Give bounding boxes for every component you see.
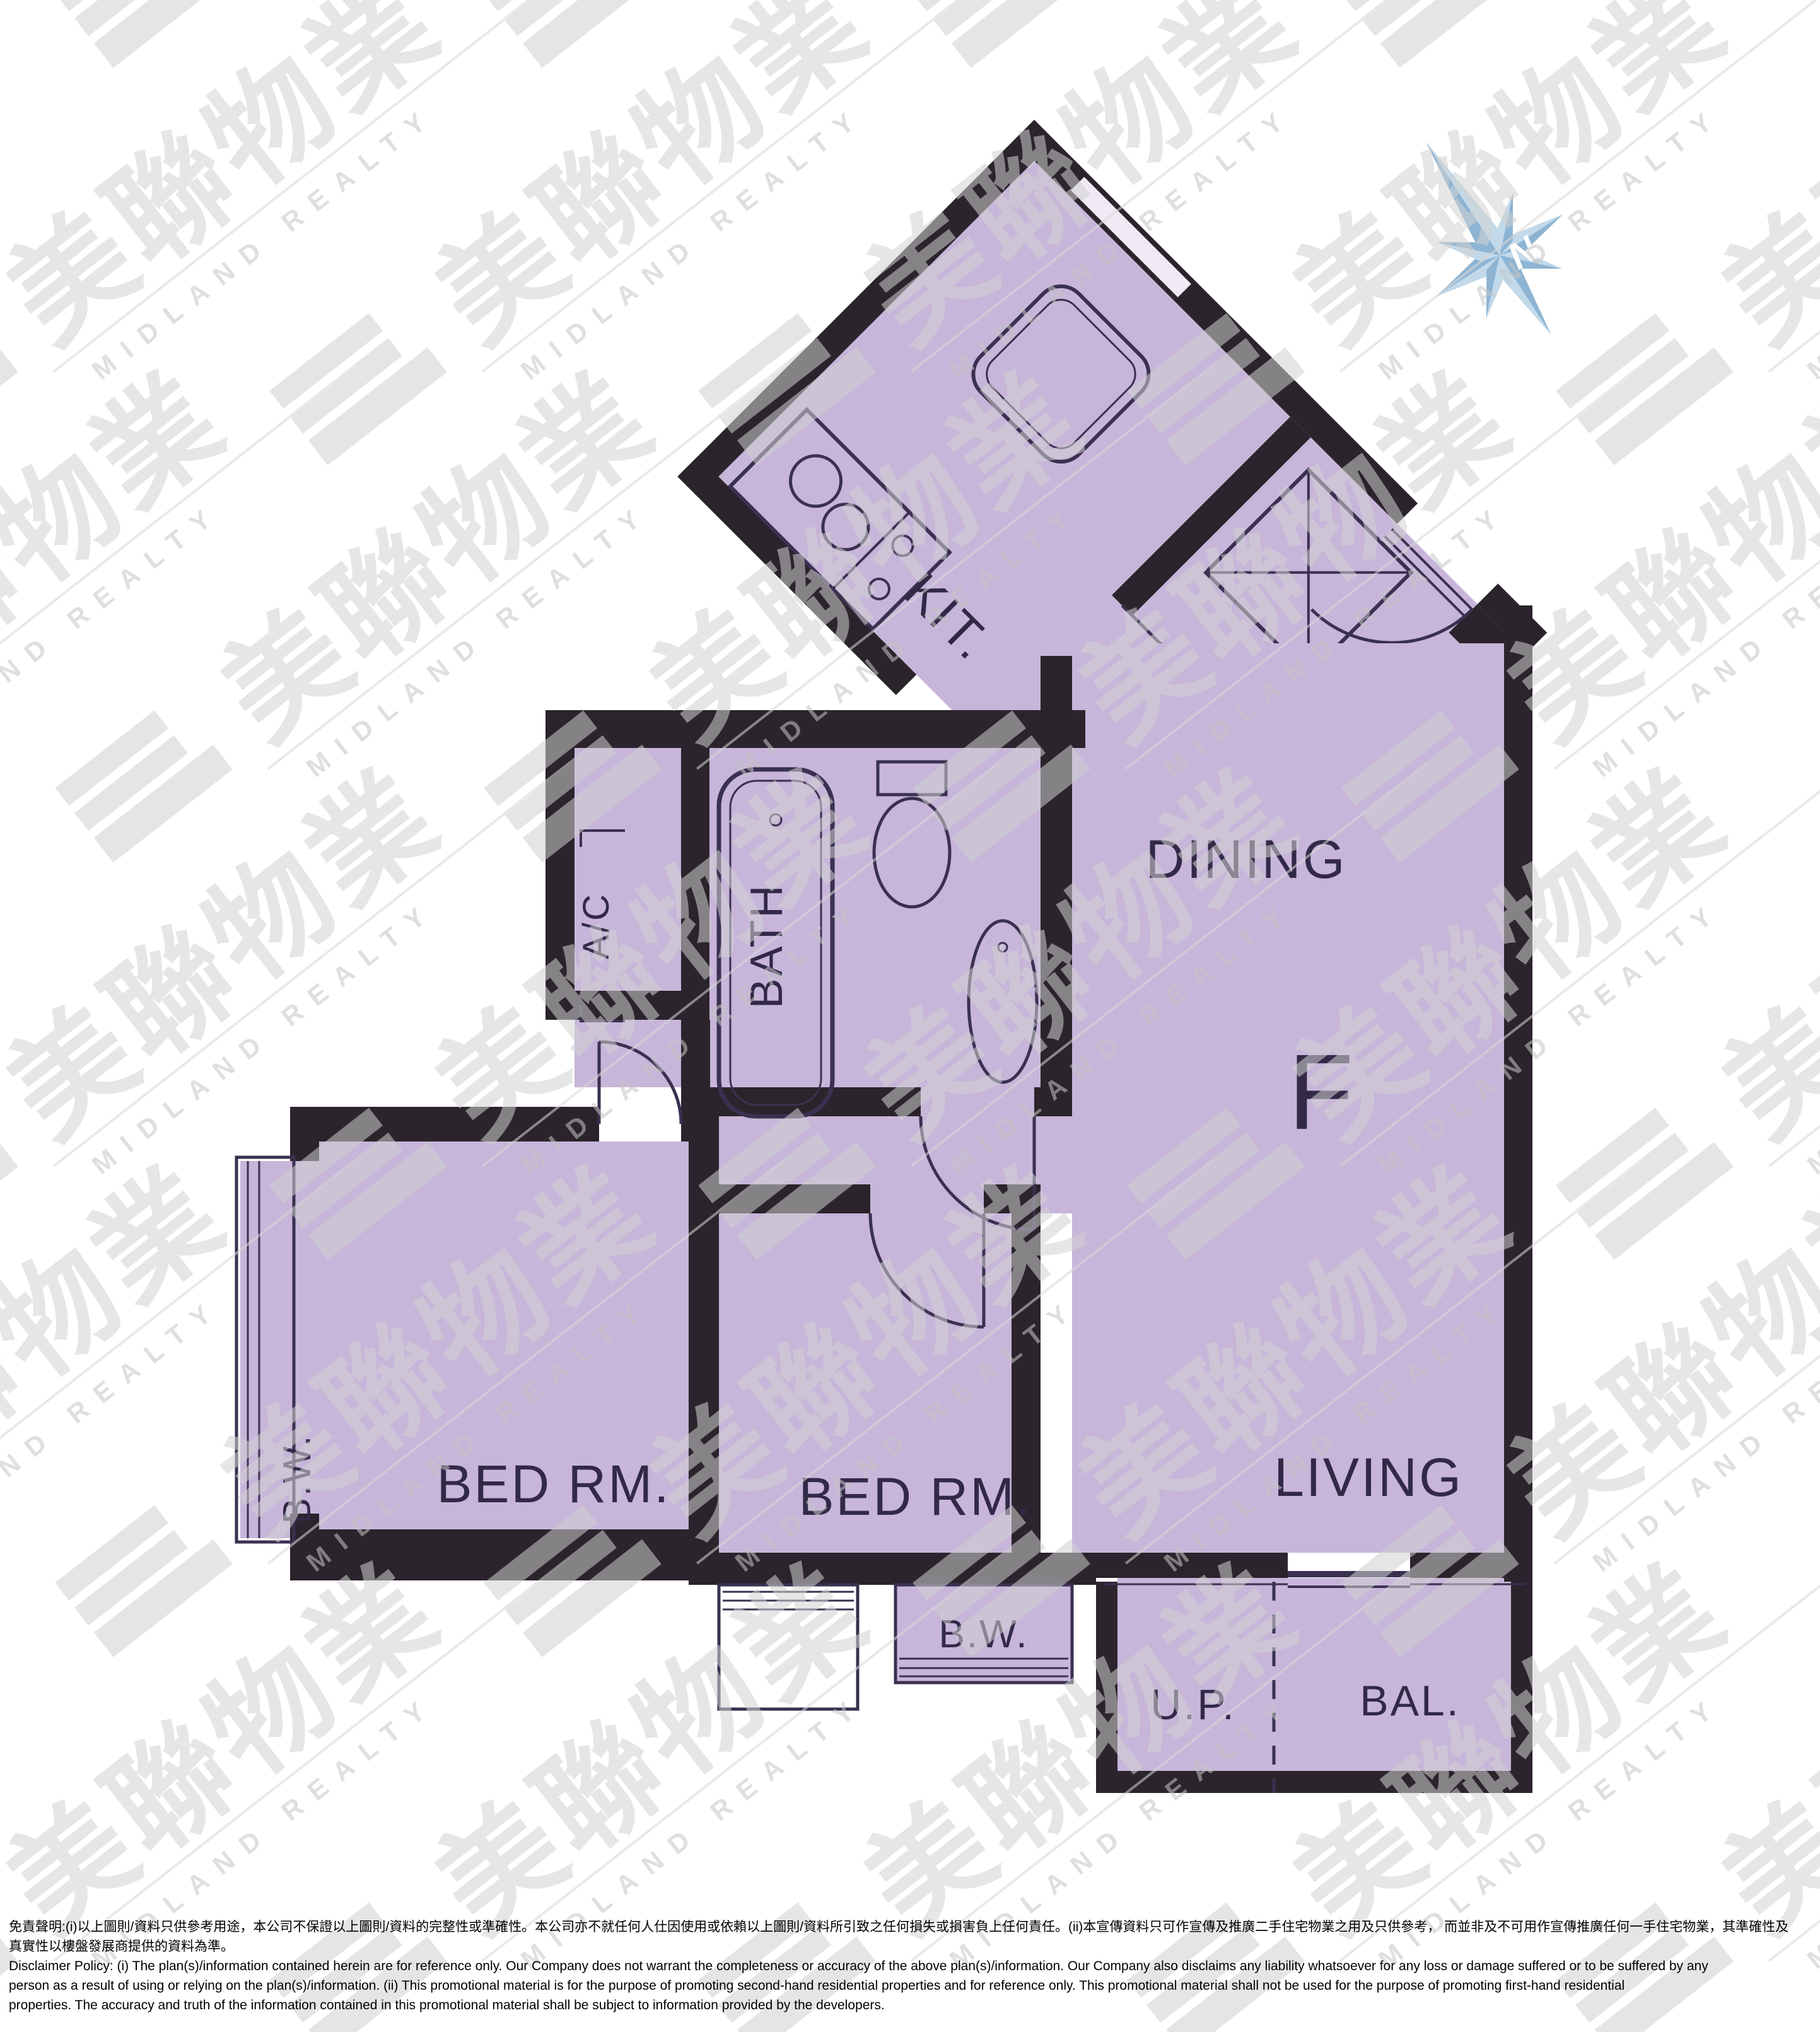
disclaimer-line-en2: person as a result of using or relying o…	[9, 1976, 1819, 1995]
baywindow1-label: B.W.	[276, 1434, 319, 1524]
hall-floor	[681, 1020, 1072, 1213]
disclaimer: 免責聲明:(i)以上圖則/資料只供參考用途，本公司不保證以上圖則/資料的完整性或…	[9, 1917, 1819, 2015]
exterior-notch	[719, 1585, 858, 1709]
bath-label: BATH	[742, 884, 792, 1009]
baywindow2-label: B.W.	[939, 1613, 1029, 1656]
north-compass: N	[1362, 100, 1614, 376]
compass-star-icon	[1362, 100, 1614, 376]
disclaimer-line-zh1: 免責聲明:(i)以上圖則/資料只供參考用途，本公司不保證以上圖則/資料的完整性或…	[9, 1917, 1819, 1937]
disclaimer-line-en3: properties. The accuracy and truth of th…	[9, 1995, 1819, 2015]
balcony-floor	[1117, 1578, 1511, 1771]
disclaimer-line-en1: Disclaimer Policy: (i) The plan(s)/infor…	[9, 1956, 1819, 1976]
disclaimer-line-zh2: 真實性以樓盤發展商提供的資料為準。	[9, 1937, 1819, 1956]
dining-label: DINING	[1146, 829, 1347, 890]
floor-plan: KIT.	[0, 0, 1820, 2032]
floorplan-page: KIT.	[0, 0, 1820, 2032]
room-floors	[240, 643, 1511, 1771]
bal-label: BAL.	[1360, 1677, 1460, 1725]
unit-letter: F	[1288, 1032, 1356, 1152]
up-label: U.P.	[1150, 1681, 1235, 1729]
bedroom2-label: BED RM.	[798, 1467, 1032, 1526]
living-label: LIVING	[1274, 1447, 1463, 1508]
bedroom1-label: BED RM.	[436, 1454, 670, 1514]
ac-label: A/C	[576, 892, 617, 959]
